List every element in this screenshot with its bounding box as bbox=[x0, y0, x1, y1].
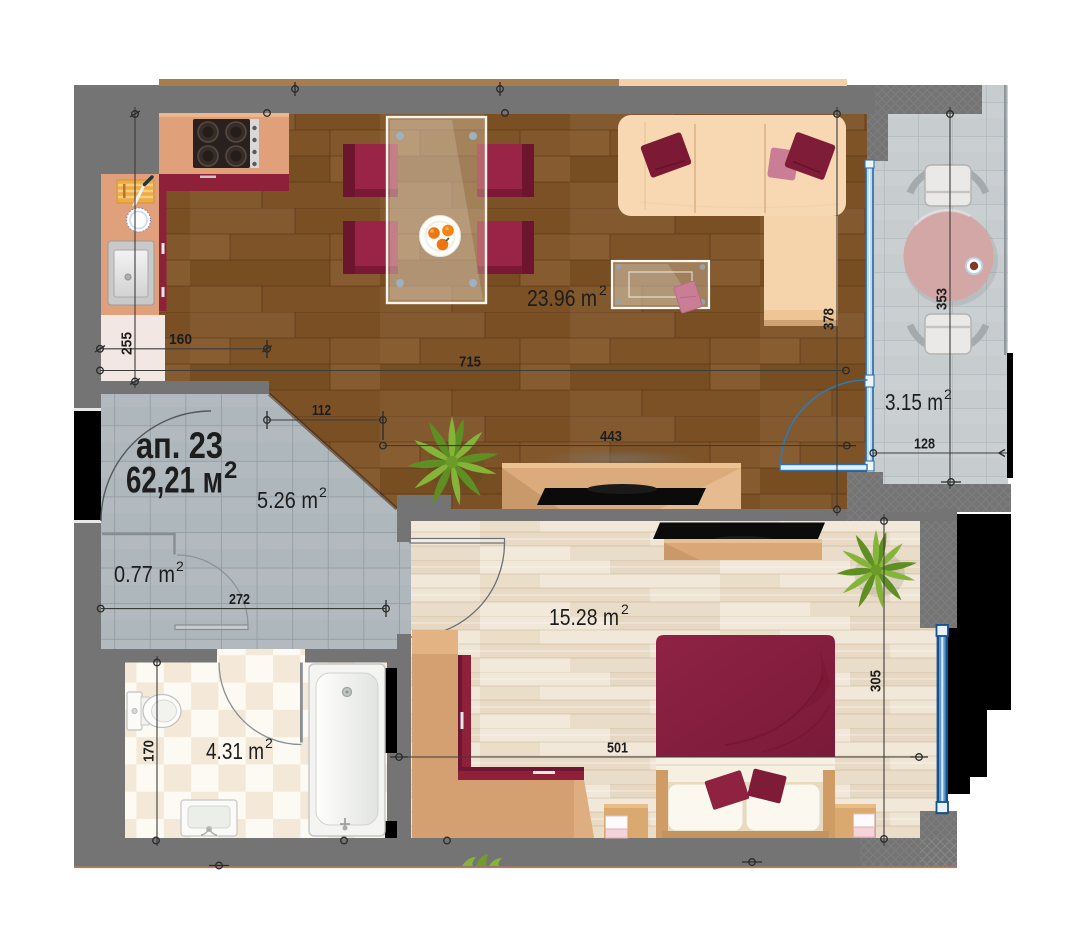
svg-text:2: 2 bbox=[599, 282, 607, 298]
svg-text:112: 112 bbox=[312, 402, 331, 419]
svg-text:2: 2 bbox=[224, 457, 237, 484]
svg-text:2: 2 bbox=[319, 484, 327, 500]
svg-text:353: 353 bbox=[934, 288, 951, 310]
svg-text:62,21 м: 62,21 м bbox=[126, 460, 223, 501]
svg-text:160: 160 bbox=[169, 331, 192, 348]
svg-text:2: 2 bbox=[621, 601, 629, 617]
svg-text:5.26 m: 5.26 m bbox=[257, 487, 318, 513]
svg-text:305: 305 bbox=[868, 670, 885, 692]
svg-text:443: 443 bbox=[600, 428, 622, 445]
svg-text:3.15 m: 3.15 m bbox=[885, 389, 943, 415]
svg-text:2: 2 bbox=[265, 735, 273, 751]
svg-text:128: 128 bbox=[914, 436, 935, 453]
svg-text:15.28 m: 15.28 m bbox=[549, 604, 619, 630]
svg-text:23.96 m: 23.96 m bbox=[527, 285, 597, 311]
svg-text:170: 170 bbox=[141, 740, 158, 762]
svg-text:501: 501 bbox=[607, 740, 628, 757]
svg-text:2: 2 bbox=[176, 558, 184, 574]
svg-text:715: 715 bbox=[459, 354, 481, 371]
svg-text:2: 2 bbox=[944, 386, 952, 402]
svg-text:0.77 m: 0.77 m bbox=[114, 561, 175, 587]
svg-text:255: 255 bbox=[119, 332, 136, 355]
svg-text:378: 378 bbox=[821, 308, 838, 330]
svg-text:4.31 m: 4.31 m bbox=[206, 738, 264, 764]
svg-text:272: 272 bbox=[229, 591, 250, 608]
